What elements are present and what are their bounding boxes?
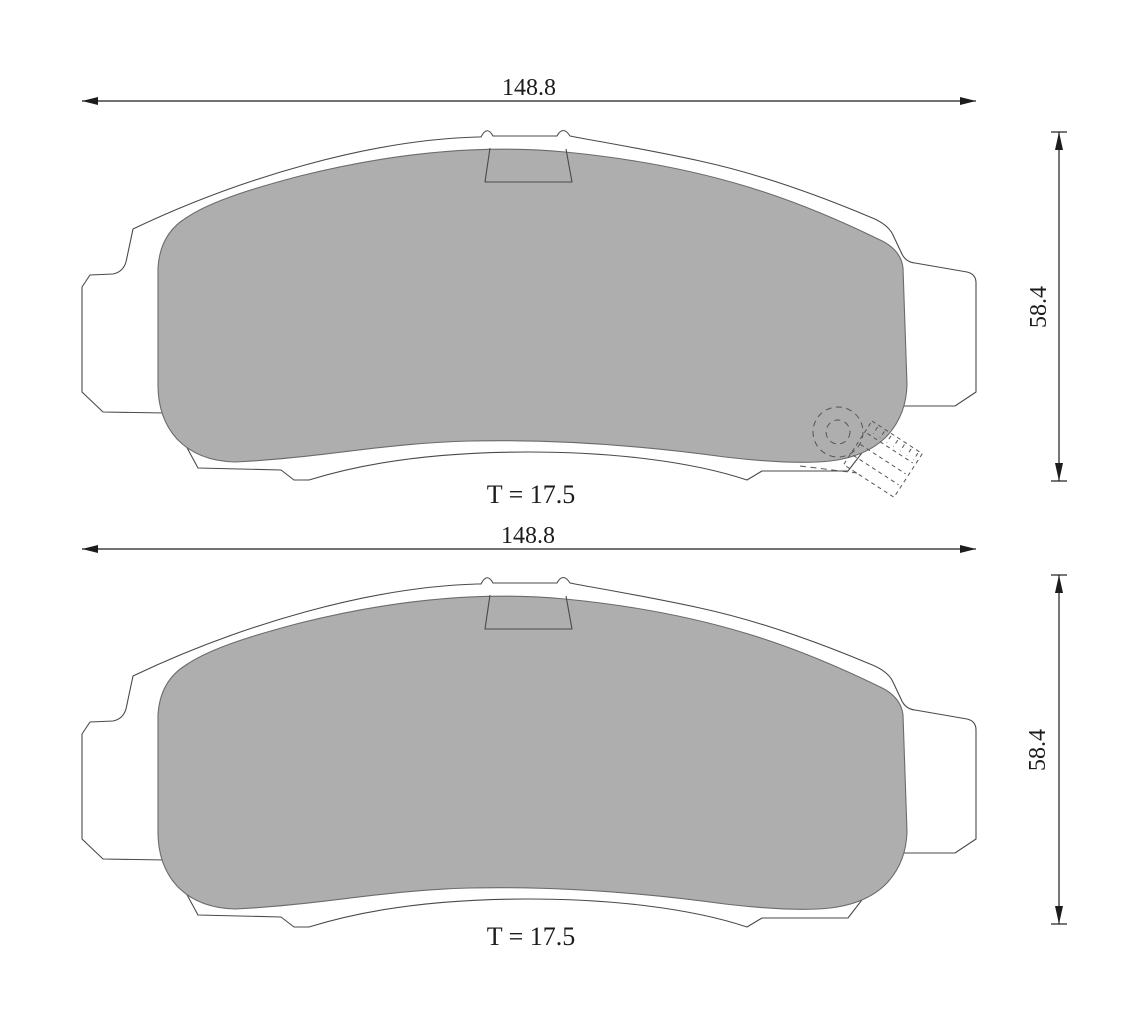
pad-top-view: 148.8 58.4 T = 17.5	[82, 75, 1067, 509]
arrow-right-icon	[960, 97, 976, 105]
height-label-top: 58.4	[1026, 286, 1052, 328]
width-label-bottom: 148.8	[501, 523, 555, 549]
arrow-down-icon	[1055, 906, 1063, 924]
arrow-left-icon	[82, 97, 98, 105]
dimension-width-top: 148.8	[82, 75, 976, 105]
pad-shape-bottom	[82, 578, 976, 928]
drawing-canvas: 148.8 58.4 T = 17.5 148.8	[0, 0, 1147, 1024]
arrow-up-icon	[1055, 575, 1063, 593]
dimension-width-bottom: 148.8	[82, 523, 976, 553]
thickness-label-bottom: T = 17.5	[487, 922, 576, 951]
dimension-height-top: 58.4	[1026, 132, 1067, 481]
height-label-bottom: 58.4	[1025, 729, 1051, 771]
arrow-up-icon	[1055, 132, 1063, 150]
pad-shape-top	[82, 131, 976, 481]
thickness-label-top: T = 17.5	[487, 480, 576, 509]
dimension-height-bottom: 58.4	[1025, 575, 1067, 924]
arrow-right-icon	[960, 545, 976, 553]
arrow-left-icon	[82, 545, 98, 553]
arrow-down-icon	[1055, 463, 1063, 481]
brake-pad-drawing: 148.8 58.4 T = 17.5 148.8	[0, 0, 1147, 1024]
width-label-top: 148.8	[502, 75, 556, 101]
pad-bottom-view: 148.8 58.4 T = 17.5	[82, 523, 1067, 951]
